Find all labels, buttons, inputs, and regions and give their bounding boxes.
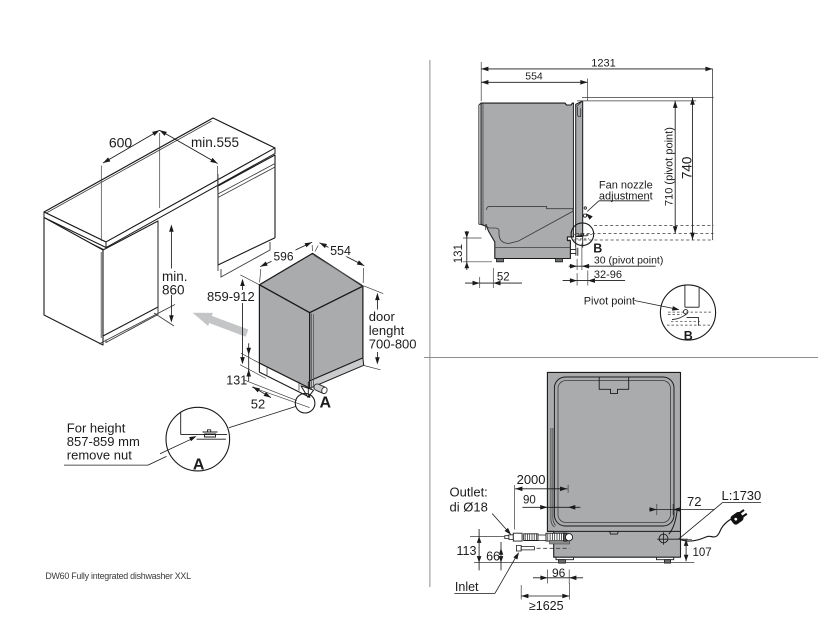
svg-text:554: 554 (525, 70, 543, 82)
svg-text:131: 131 (226, 373, 247, 387)
svg-text:B: B (593, 241, 602, 255)
svg-text:32-96: 32-96 (594, 269, 622, 281)
svg-text:72: 72 (687, 494, 701, 509)
svg-text:107: 107 (693, 547, 712, 559)
svg-text:52: 52 (251, 396, 265, 411)
svg-text:52: 52 (497, 271, 510, 283)
svg-text:700-800: 700-800 (369, 337, 417, 352)
svg-text:600: 600 (109, 135, 133, 151)
svg-text:554: 554 (330, 244, 351, 258)
svg-text:710 (pivot point): 710 (pivot point) (664, 127, 676, 206)
svg-text:A: A (320, 395, 332, 412)
svg-text:90: 90 (523, 494, 536, 506)
svg-text:596: 596 (273, 250, 293, 264)
svg-text:66: 66 (486, 550, 500, 564)
svg-text:859-912: 859-912 (207, 289, 255, 304)
svg-text:860: 860 (162, 283, 185, 298)
svg-text:A: A (193, 457, 205, 474)
svg-text:96: 96 (552, 566, 566, 580)
svg-text:1231: 1231 (591, 58, 615, 70)
svg-text:remove nut: remove nut (67, 447, 132, 462)
svg-text:B: B (684, 329, 693, 343)
svg-text:131: 131 (453, 244, 465, 263)
svg-text:Pivot point: Pivot point (584, 295, 635, 307)
svg-text:min.555: min.555 (191, 135, 239, 150)
svg-text:door: door (369, 309, 396, 324)
svg-text:740: 740 (680, 157, 695, 180)
svg-text:2000: 2000 (517, 472, 546, 487)
svg-text:Inlet: Inlet (455, 580, 479, 594)
svg-text:Outlet:: Outlet: (450, 484, 488, 499)
svg-text:DW60 Fully integrated dishwash: DW60 Fully integrated dishwasher XXL (45, 571, 191, 581)
svg-text:113: 113 (457, 544, 477, 558)
svg-text:di Ø18: di Ø18 (450, 499, 488, 514)
svg-text:30 (pivot point): 30 (pivot point) (594, 254, 663, 266)
svg-text:L:1730: L:1730 (722, 488, 762, 503)
svg-text:≥1625: ≥1625 (529, 599, 564, 613)
